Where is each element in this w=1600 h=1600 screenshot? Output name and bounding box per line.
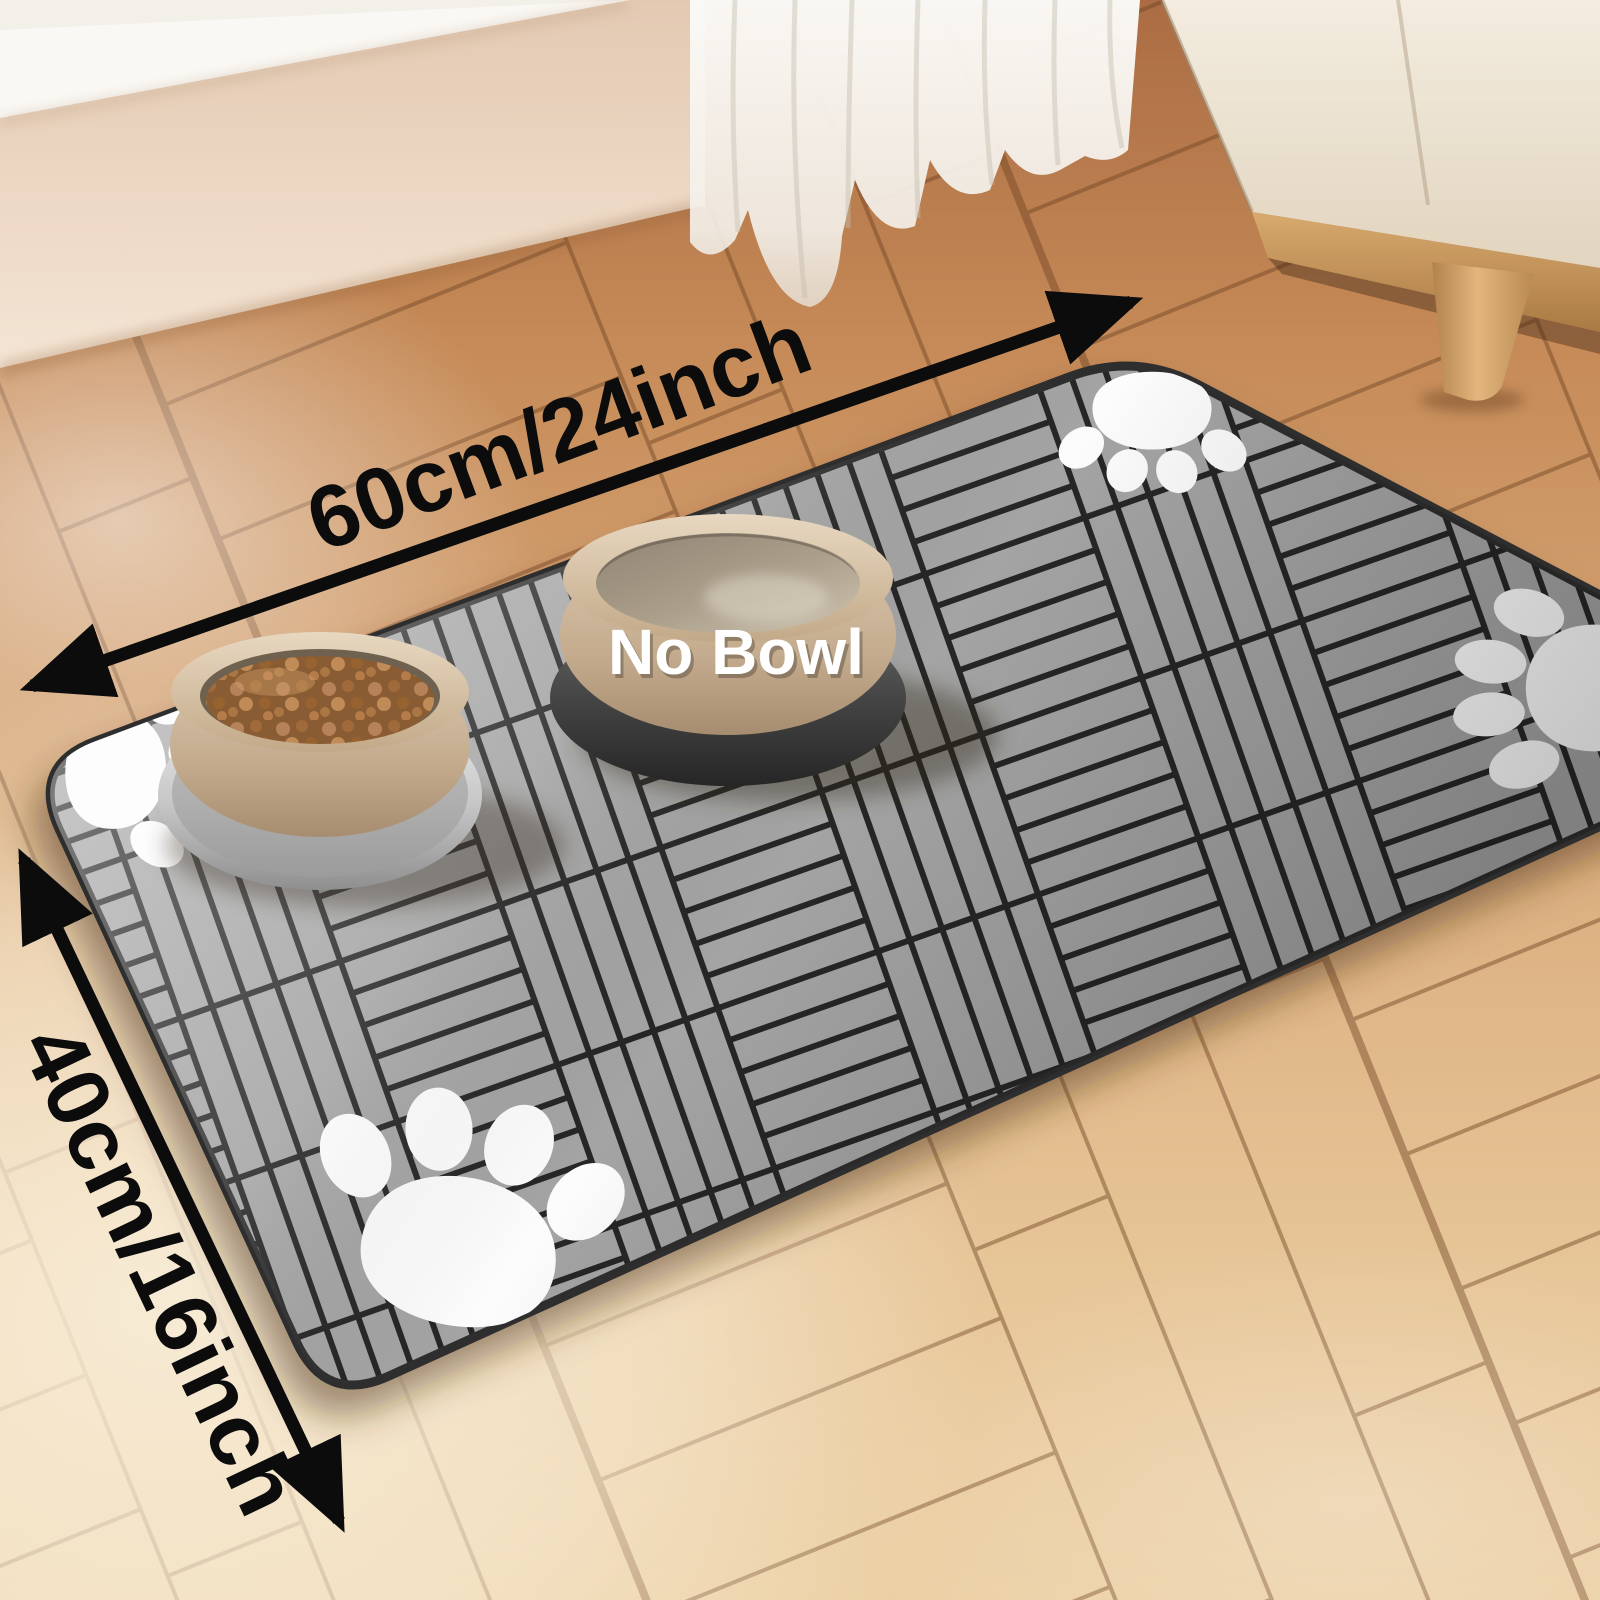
kibble — [206, 656, 434, 744]
pet-feeding-mat-product-photo: No Bowl No Bowl 60cm/24inch 40cm/16inch — [0, 0, 1600, 1600]
scene: No Bowl No Bowl 60cm/24inch 40cm/16inch — [0, 0, 1600, 1600]
svg-text:No Bowl: No Bowl — [608, 616, 864, 688]
no-bowl-label: No Bowl No Bowl — [608, 616, 867, 692]
